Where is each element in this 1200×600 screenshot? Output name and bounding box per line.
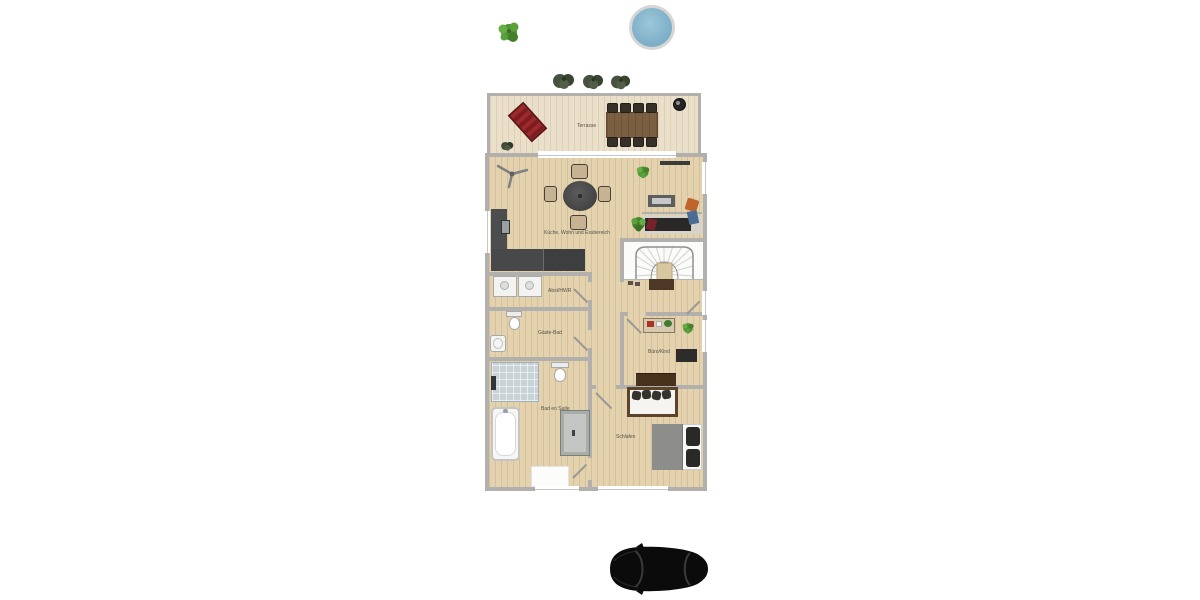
room-label-living: Küche, Wohn und Essbereich <box>544 230 610 236</box>
wall <box>588 480 592 487</box>
daybed-pillow <box>661 389 671 399</box>
dining-chair <box>544 186 557 202</box>
sideboard <box>636 373 676 386</box>
toilet <box>509 317 520 330</box>
outdoor-chair <box>633 103 644 113</box>
bush-icon <box>551 70 577 92</box>
wall <box>620 238 624 282</box>
tree-icon <box>497 19 521 45</box>
window <box>702 320 708 352</box>
bush-icon <box>609 72 633 92</box>
wall <box>588 385 596 389</box>
daybed-pillow <box>651 390 661 400</box>
bed-blanket <box>652 424 683 470</box>
kitchen-appliance-block <box>543 249 585 271</box>
vanity-front-icon <box>564 414 586 452</box>
toilet <box>554 368 566 382</box>
plant-icon <box>629 213 648 234</box>
room-label-office: Büro/Kind <box>648 349 670 355</box>
grill-lid-handle-icon <box>676 101 680 105</box>
bathtub-faucet-icon <box>503 409 508 413</box>
toy-red-icon <box>647 321 654 327</box>
plant-icon <box>634 163 652 181</box>
bath-mat <box>531 466 569 487</box>
room-label-utility: Abst/HWR <box>548 288 571 294</box>
outdoor-chair <box>607 103 618 113</box>
window <box>598 486 668 492</box>
dining-chair <box>571 164 588 179</box>
bathtub-basin-icon <box>495 412 516 456</box>
potted-plant-icon <box>500 139 515 153</box>
bush-icon <box>581 71 606 92</box>
table-center-icon <box>578 194 582 198</box>
bed-pillow <box>686 449 700 467</box>
terrace-sliding-door <box>538 151 676 158</box>
shoes <box>635 282 640 286</box>
dining-chair <box>598 186 611 202</box>
room-label-guest-bath: Gäste-Bad <box>538 330 562 336</box>
vanity-handle-icon <box>572 430 575 436</box>
shower-fixture-icon <box>491 376 496 390</box>
desk <box>676 349 697 362</box>
daybed-pillow <box>631 390 641 400</box>
outdoor-chair <box>633 137 644 147</box>
outdoor-chair <box>646 103 657 113</box>
outdoor-dining-table <box>606 112 658 138</box>
outdoor-chair <box>620 103 631 113</box>
wall-shelf <box>660 161 690 165</box>
bed-pillow <box>686 427 700 446</box>
doormat <box>649 279 674 290</box>
outdoor-chair <box>620 137 631 147</box>
outdoor-chair <box>646 137 657 147</box>
wall <box>588 272 592 282</box>
daybed-pillow <box>642 390 652 400</box>
staircase <box>624 242 703 280</box>
window <box>484 211 490 253</box>
toy-white-icon <box>656 321 662 327</box>
wall <box>489 307 588 311</box>
window <box>702 162 708 194</box>
outdoor-chair <box>607 137 618 147</box>
car-icon <box>598 543 713 595</box>
pool <box>629 5 675 50</box>
room-label-terrace: Terrasse <box>577 123 596 129</box>
floor-plan: Terrasse <box>0 0 1200 600</box>
dining-chair <box>570 215 587 230</box>
shoes <box>628 281 633 285</box>
room-label-bedroom: Schlafen <box>616 434 635 440</box>
wall <box>588 300 592 330</box>
wall <box>620 238 703 242</box>
plant-icon <box>680 320 696 336</box>
walk-in-shower <box>491 362 539 402</box>
ceiling-fan-icon <box>495 161 529 189</box>
washer-door-icon <box>500 281 509 290</box>
tv-screen-icon <box>652 198 671 204</box>
room-label-ensuite-bath: Bad en Suite <box>541 406 570 412</box>
window <box>535 486 579 492</box>
wall <box>646 312 703 316</box>
entrance-door-opening <box>702 291 708 315</box>
dryer-door-icon <box>525 281 534 290</box>
wall <box>620 312 624 389</box>
wall <box>489 357 588 361</box>
washbasin-bowl-icon <box>493 338 503 349</box>
kitchen-sink <box>501 220 510 234</box>
toy-green-icon <box>664 320 672 327</box>
